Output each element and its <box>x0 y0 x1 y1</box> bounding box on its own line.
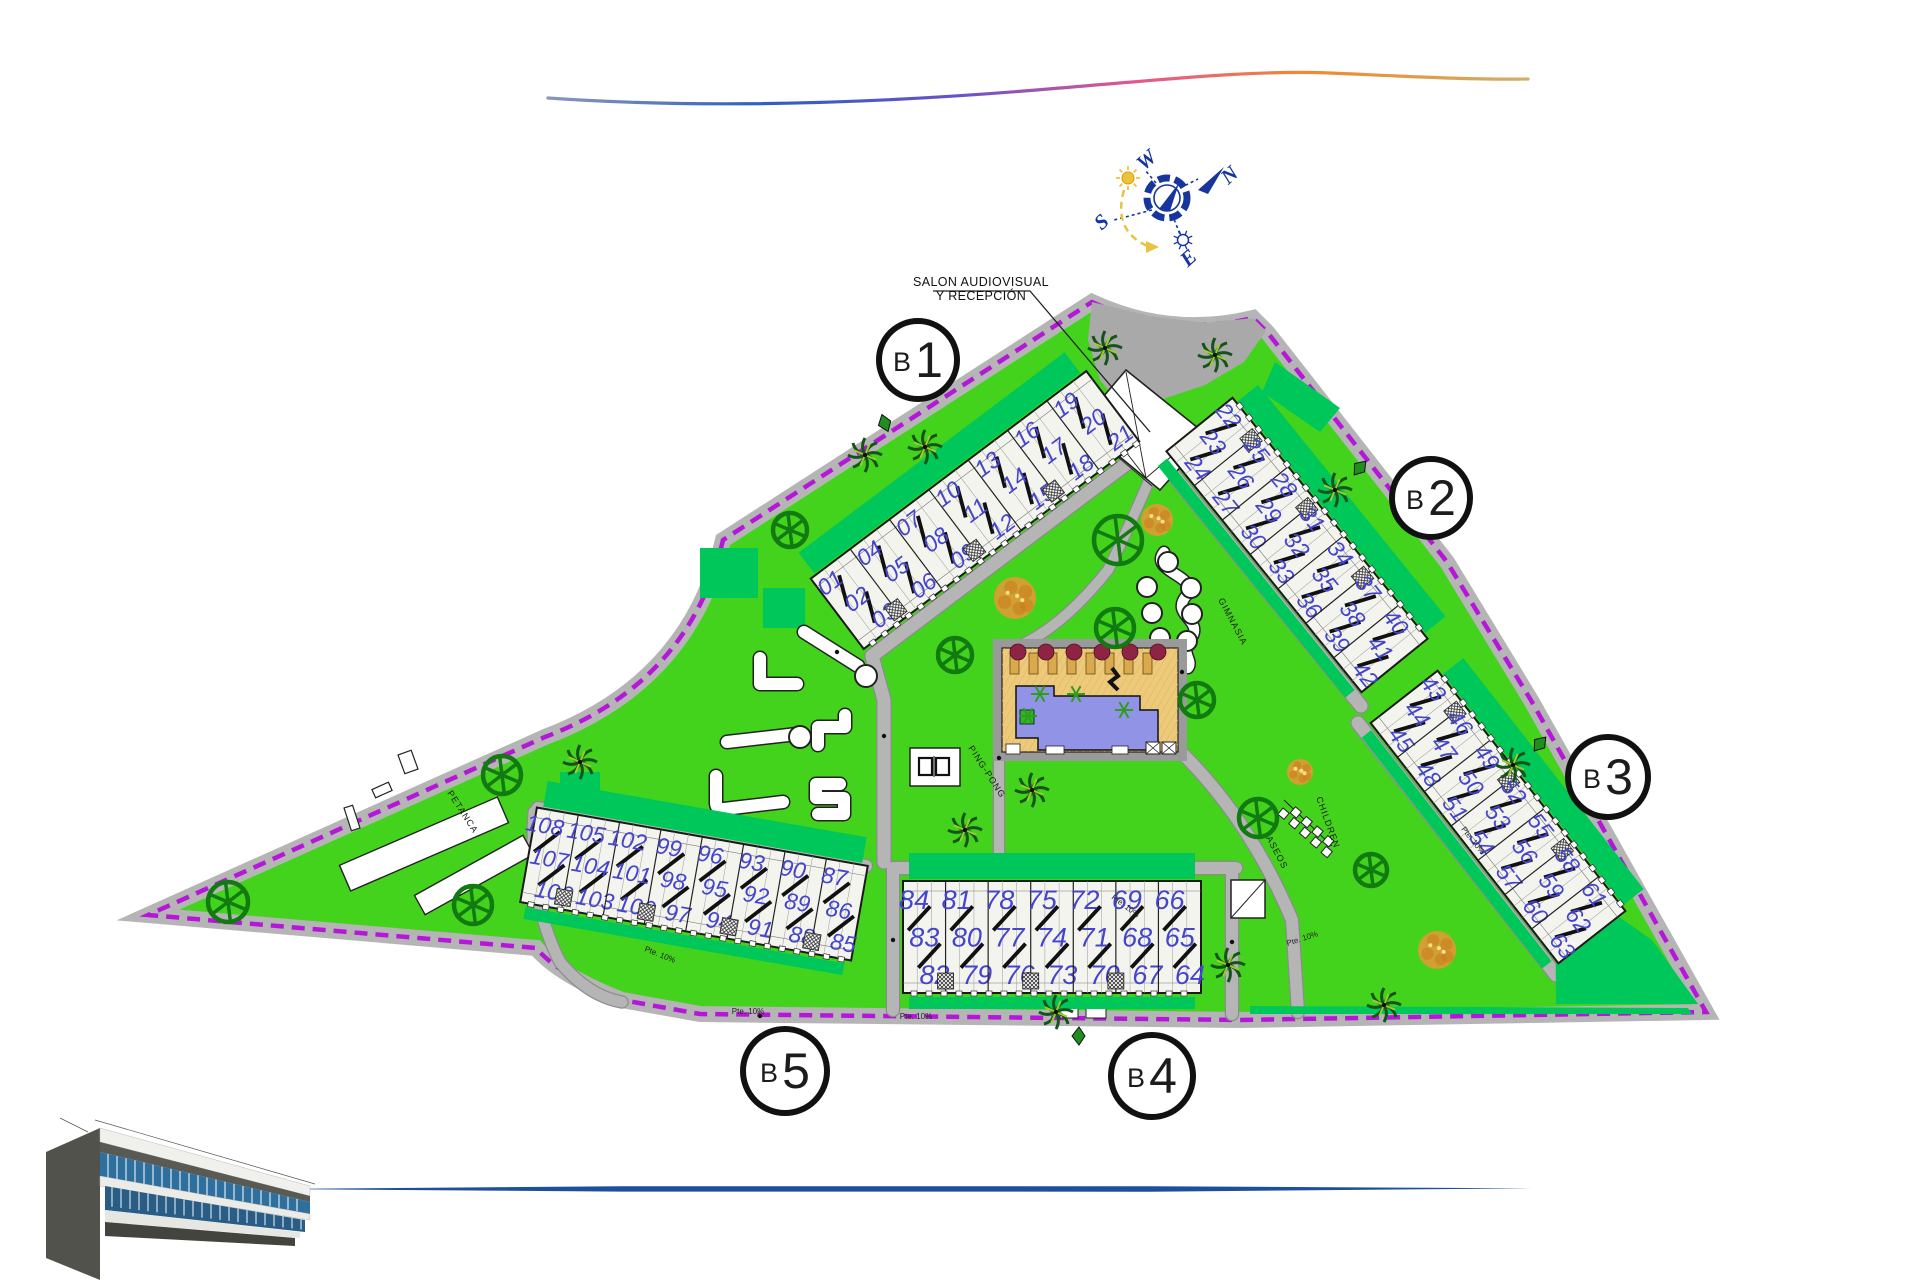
autumn-tree-icon <box>1141 504 1173 536</box>
swimming-pool <box>1016 686 1158 750</box>
gym-station <box>1142 603 1162 623</box>
unit-number: 77 <box>994 922 1025 952</box>
block-label-b1: B1 <box>879 321 957 399</box>
terrace-tick <box>542 904 549 910</box>
building-garden-strip <box>909 853 1195 879</box>
terrace-tick <box>557 907 564 913</box>
terrace-tick <box>690 930 697 936</box>
unit-number: 65 <box>1165 922 1196 952</box>
unit-number: 85 <box>828 928 858 958</box>
pool-steps <box>1046 746 1064 754</box>
block-number: 5 <box>782 1043 810 1099</box>
terrace-tick <box>956 991 962 996</box>
unit-number: 75 <box>1027 885 1058 915</box>
unit-number: 86 <box>824 895 854 925</box>
unit-number: 68 <box>1122 922 1152 952</box>
block-label-b5: B5 <box>743 1029 827 1113</box>
block-label-b3: B3 <box>1568 737 1648 817</box>
unit-number: 98 <box>658 865 688 895</box>
unit-number: 95 <box>700 873 730 903</box>
stairwell <box>1108 973 1124 989</box>
playground-roundabout <box>855 665 877 687</box>
terrace-tick <box>793 948 800 954</box>
autumn-tree-icon <box>1418 931 1456 969</box>
block-number: 1 <box>915 332 943 388</box>
terrace-tick <box>941 991 947 996</box>
unit-number: 80 <box>952 922 982 952</box>
terrace-tick <box>823 954 830 960</box>
block-letter: B <box>760 1058 778 1088</box>
terrace-tick <box>1061 991 1067 996</box>
unit-number: 74 <box>1037 922 1067 952</box>
terrace-tick <box>528 902 535 908</box>
unit-number: 84 <box>899 885 929 915</box>
ping-pong-table-icon <box>936 758 949 775</box>
terrace-tick <box>1106 991 1112 996</box>
gym-station <box>1158 552 1178 572</box>
unit-number: 93 <box>737 847 767 877</box>
terrace-tick <box>838 956 845 962</box>
bollard-icon <box>891 938 895 942</box>
unit-number: 78 <box>984 885 1014 915</box>
reception-note-line2: Y RECEPCIÓN <box>936 288 1026 303</box>
terrace-tick <box>720 935 727 941</box>
terrace-tick <box>764 943 771 949</box>
terrace-tick <box>661 925 668 931</box>
unit-number: 64 <box>1175 960 1205 990</box>
stairwell <box>720 917 739 936</box>
block-letter: B <box>1583 764 1601 794</box>
terrace-tick <box>1091 991 1097 996</box>
terrace-tick <box>1166 991 1172 996</box>
stairwell <box>554 888 573 907</box>
logo-wireframe <box>60 1118 88 1132</box>
stairwell <box>637 903 656 922</box>
block-letter: B <box>1406 485 1424 515</box>
playground-equipment-surface <box>816 784 844 814</box>
umbrella-icon <box>1066 644 1082 660</box>
umbrella-icon <box>1038 644 1054 660</box>
stairwell <box>803 932 822 951</box>
sun-lounger <box>1143 653 1152 674</box>
compass-rose: W N S E <box>1089 144 1244 272</box>
gym-station <box>1137 577 1157 597</box>
unit-number: 89 <box>783 887 813 917</box>
terrace-tick <box>971 991 977 996</box>
terrace-tick <box>911 991 917 996</box>
block-number: 2 <box>1428 470 1456 526</box>
company-logo-building <box>46 1118 315 1280</box>
garden-patch <box>700 548 758 598</box>
umbrella-icon <box>1010 644 1026 660</box>
building-garden-strip <box>909 997 1195 1009</box>
terrace-tick <box>1046 991 1052 996</box>
block-number: 3 <box>1605 749 1633 805</box>
terrace-tick <box>1181 991 1187 996</box>
unit-number: 90 <box>778 854 808 884</box>
unit-number: 66 <box>1154 885 1185 915</box>
bollard-icon <box>882 734 886 738</box>
compass-east: E <box>1174 244 1201 272</box>
terrace-tick <box>631 920 638 926</box>
unit-number: 83 <box>909 922 939 952</box>
bollard-icon <box>1180 670 1184 674</box>
sun-path-arrow-icon <box>1146 241 1159 253</box>
terrace-tick <box>1016 991 1022 996</box>
unit-number: 71 <box>1080 922 1110 952</box>
terrace-tick <box>749 941 756 947</box>
compass-tick-s <box>1114 210 1152 220</box>
ramp-label: Pte. 10% <box>732 1007 764 1016</box>
block-letter: B <box>1127 1063 1145 1093</box>
ping-pong-table-icon <box>919 758 932 775</box>
terrace-tick <box>675 928 682 934</box>
autumn-tree-icon <box>994 577 1036 619</box>
terrace-tick <box>779 946 786 952</box>
sun-lounger <box>1029 653 1038 674</box>
bollard-icon <box>997 756 1001 760</box>
terrace-tick <box>601 915 608 921</box>
terrace-tick <box>734 938 741 944</box>
pool-steps <box>1112 746 1128 754</box>
header-swoosh <box>548 72 1528 103</box>
site-plan-page: 0102030405060708091011121314151617181920… <box>0 0 1920 1280</box>
terrace-tick <box>926 991 932 996</box>
reception-note-line1: SALON AUDIOVISUAL <box>913 275 1049 289</box>
umbrella-icon <box>1150 644 1166 660</box>
entrance-marker-icon <box>1072 1027 1085 1045</box>
autumn-tree-icon <box>1287 759 1313 785</box>
compass-south: S <box>1089 209 1114 235</box>
stairwell <box>1023 973 1039 989</box>
terrace-tick <box>587 912 594 918</box>
terrace-tick <box>646 922 653 928</box>
compass-north: N <box>1215 160 1244 189</box>
block-label-b2: B2 <box>1392 459 1470 537</box>
terrace-tick <box>1136 991 1142 996</box>
unit-number: 99 <box>654 832 684 862</box>
terrace-tick <box>616 917 623 923</box>
unit-number: 72 <box>1069 885 1099 915</box>
unit-number: 81 <box>942 885 972 915</box>
site-plan-drawing: 0102030405060708091011121314151617181920… <box>0 0 1920 1280</box>
gym-station <box>1182 604 1202 624</box>
playground-equipment-surface <box>727 734 797 742</box>
building-b4: 8483828180797877767574737271706968676665… <box>899 853 1205 1009</box>
stairwell <box>938 973 954 989</box>
unit-number: 96 <box>695 839 725 869</box>
bollard-icon <box>835 650 839 654</box>
gym-station <box>1181 578 1201 598</box>
block-label-b4: B4 <box>1111 1035 1193 1117</box>
terrace-tick <box>572 909 579 915</box>
unit-number: 92 <box>741 880 771 910</box>
terrace-tick <box>1121 991 1127 996</box>
pool-steps <box>1006 744 1020 754</box>
garden-patch <box>763 588 805 628</box>
block-number: 4 <box>1149 1048 1177 1104</box>
terrace-tick <box>1031 991 1037 996</box>
terrace-tick <box>705 933 712 939</box>
petanca-bench <box>398 750 418 774</box>
ramp-label: Pte. 10% <box>900 1012 932 1021</box>
terrace-tick <box>986 991 992 996</box>
terrace-tick <box>808 951 815 957</box>
petanca-bench <box>372 782 392 798</box>
logo-dark-wall <box>46 1128 100 1280</box>
bollard-icon <box>1230 940 1234 944</box>
playground-roundabout <box>789 726 811 748</box>
terrace-tick <box>1151 991 1157 996</box>
terrace-tick <box>1076 991 1082 996</box>
sun-icon <box>1116 166 1140 190</box>
footer-rule <box>268 1186 1532 1191</box>
terrace-tick <box>1001 991 1007 996</box>
sun-lounger <box>1086 653 1095 674</box>
pool-area <box>998 644 1182 756</box>
unit-number: 91 <box>746 913 776 943</box>
block-letter: B <box>893 347 911 377</box>
